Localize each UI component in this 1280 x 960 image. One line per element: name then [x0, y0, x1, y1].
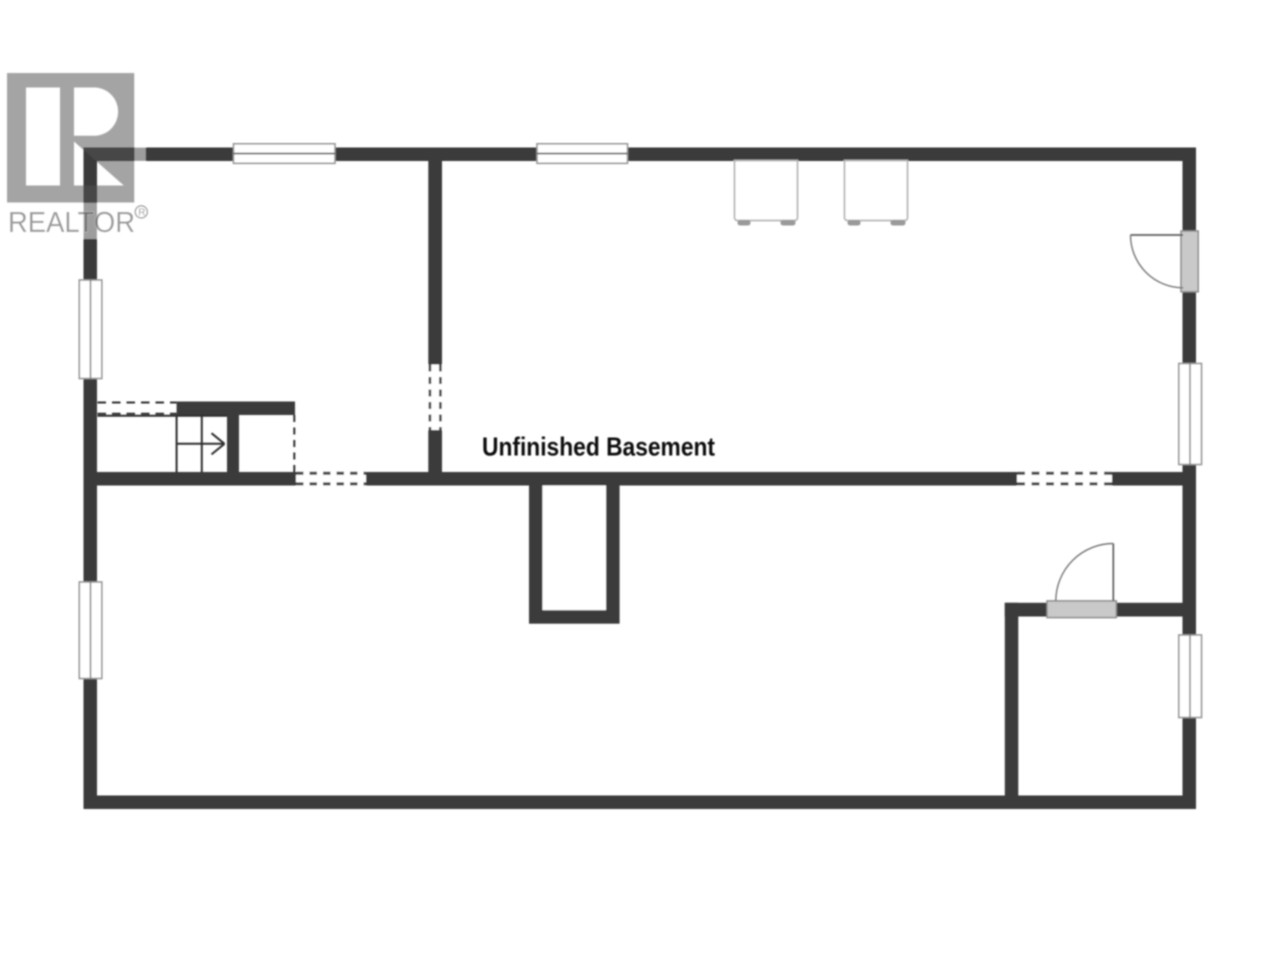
svg-text:Unfinished Basement: Unfinished Basement	[482, 432, 715, 462]
svg-text:R: R	[138, 208, 145, 219]
svg-text:REALTOR: REALTOR	[8, 207, 135, 239]
